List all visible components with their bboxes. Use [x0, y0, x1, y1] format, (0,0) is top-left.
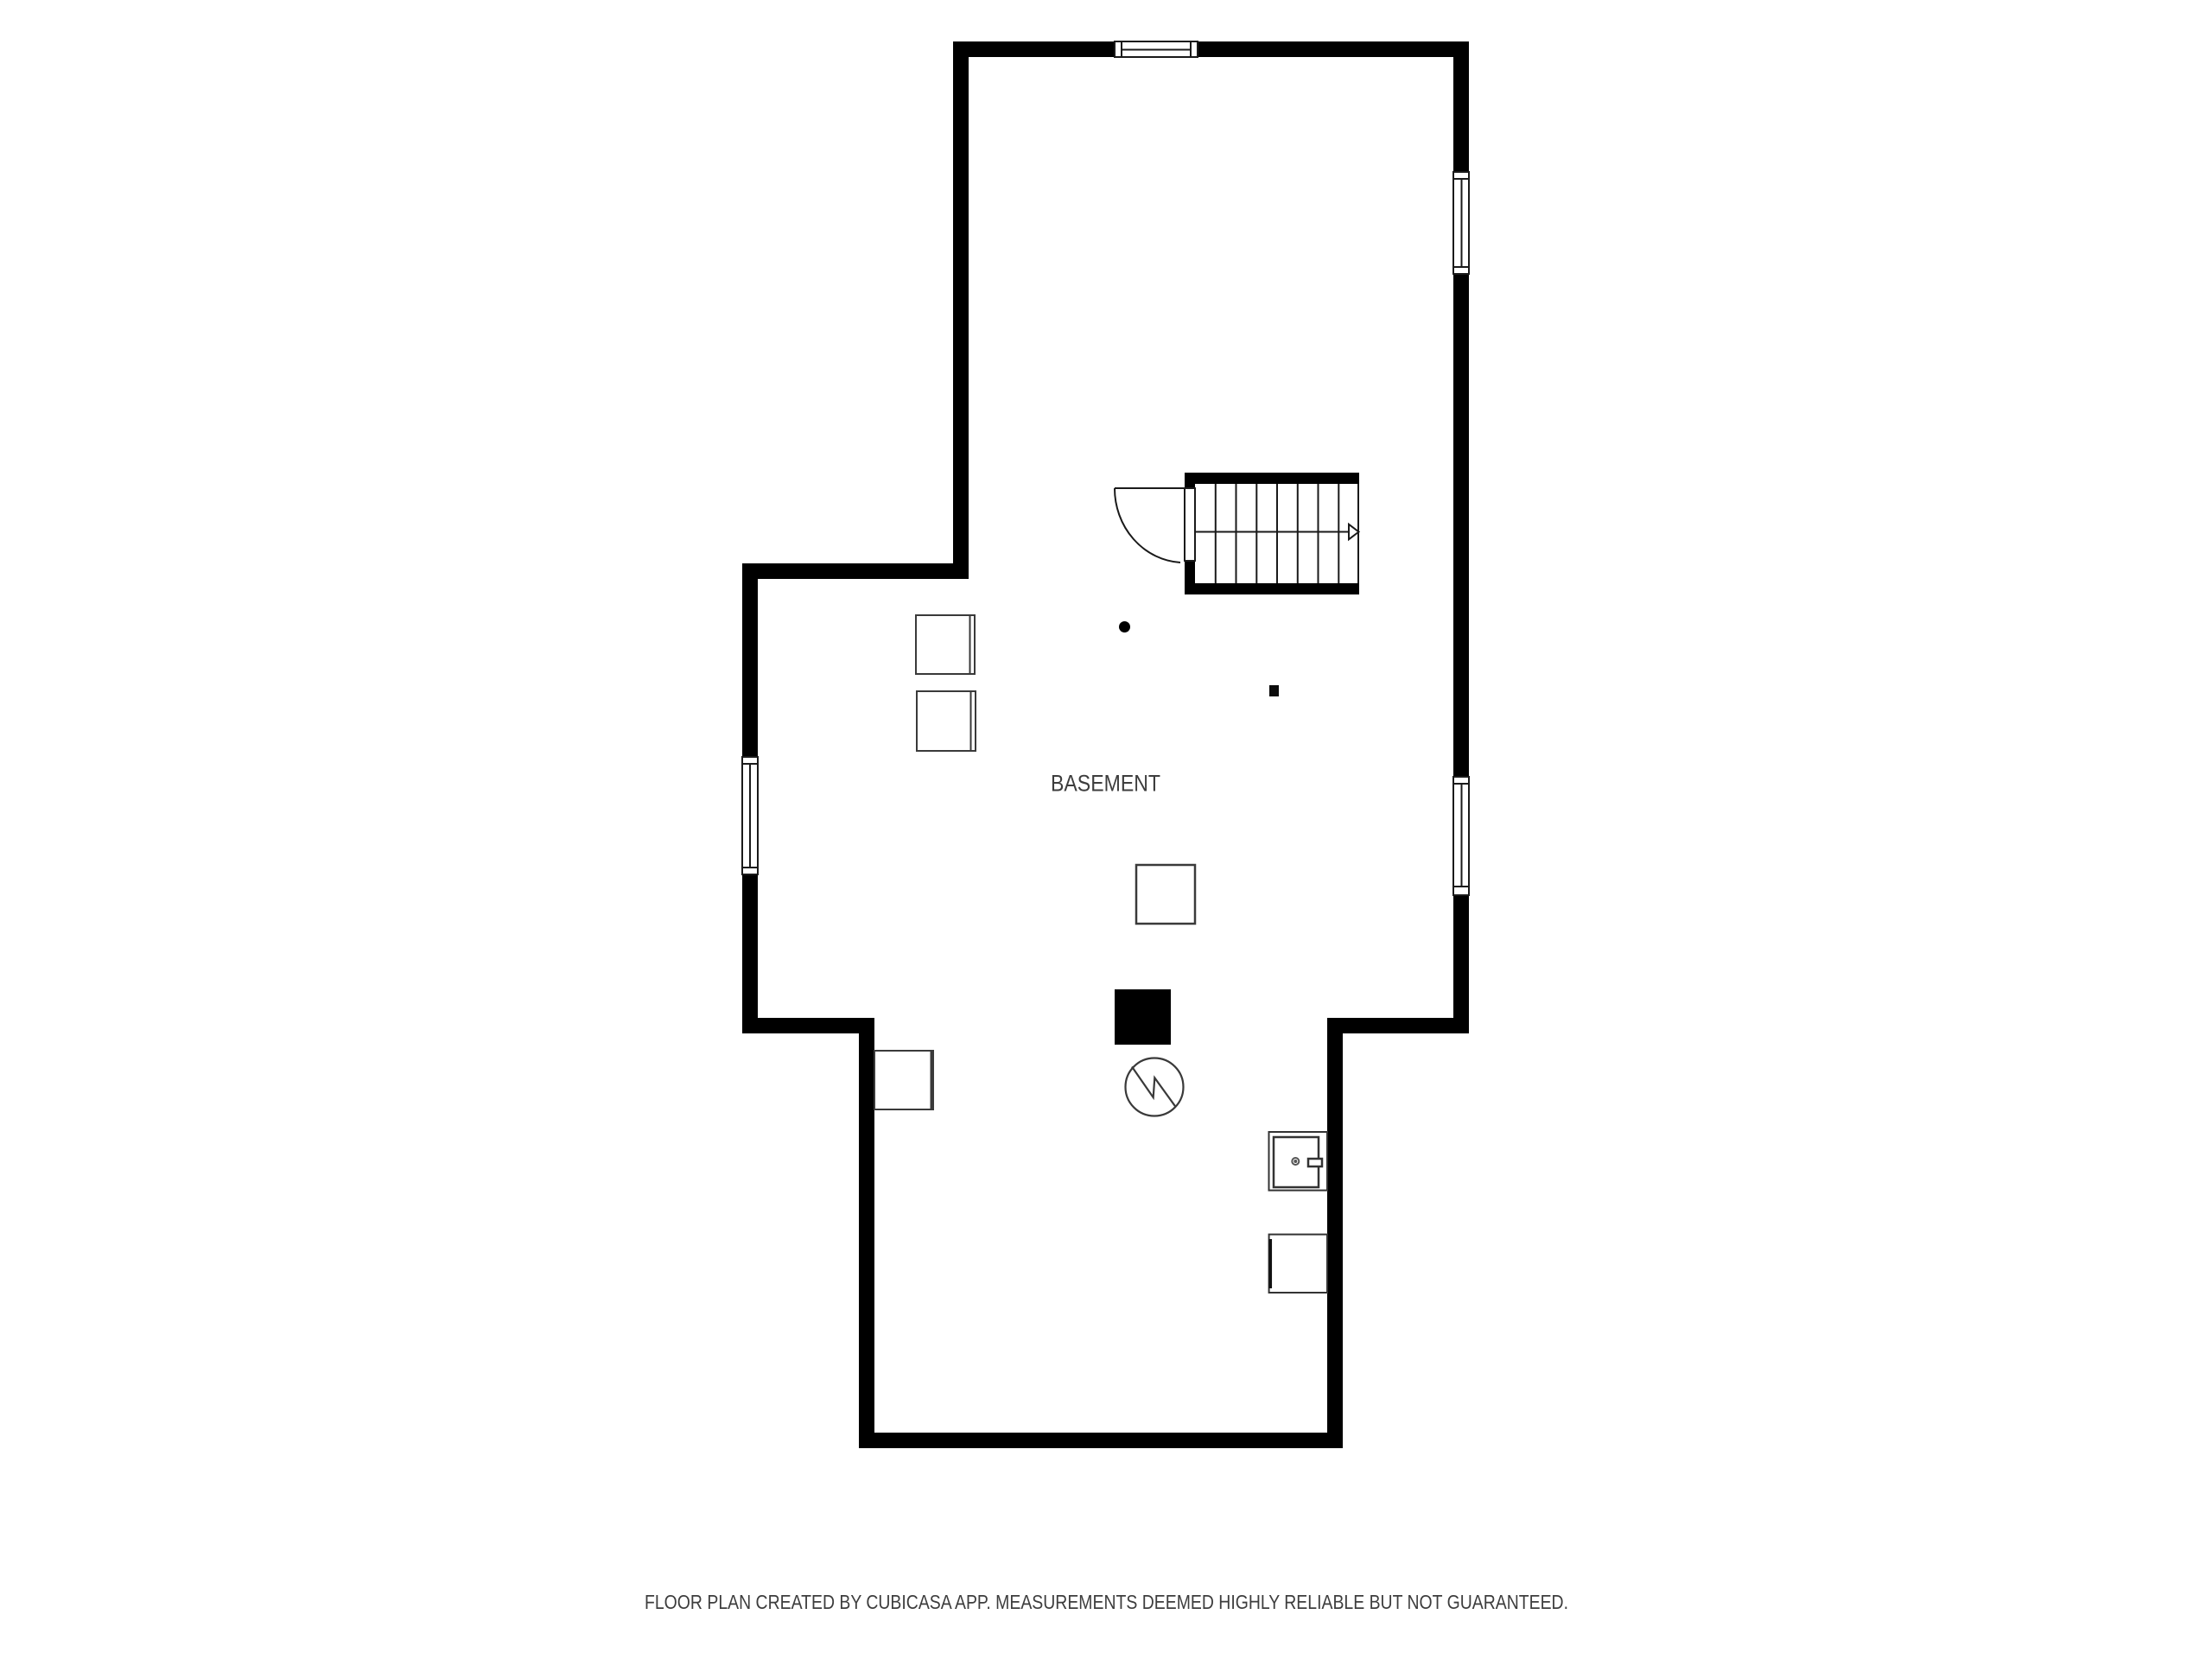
svg-text:FLOOR PLAN CREATED BY CUBICASA: FLOOR PLAN CREATED BY CUBICASA APP. MEAS… [645, 1591, 1568, 1613]
svg-text:BASEMENT: BASEMENT [1051, 771, 1160, 797]
